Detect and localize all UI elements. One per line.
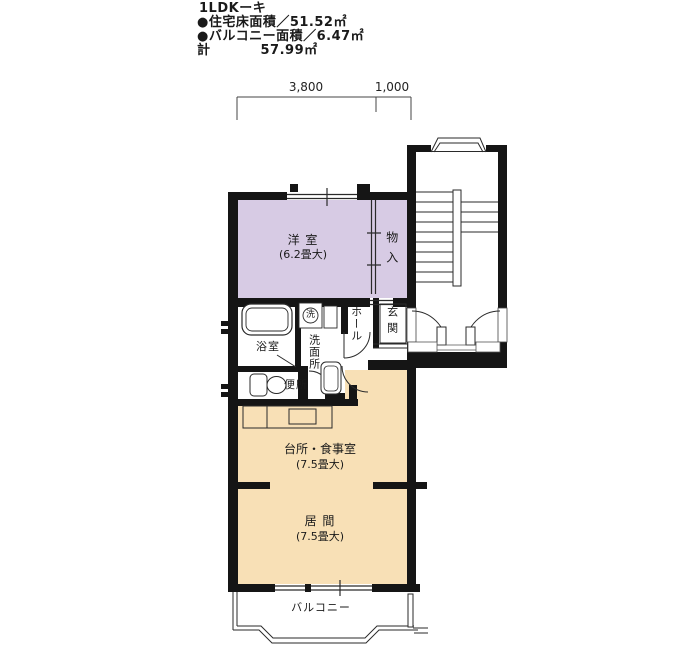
wall-kitchen-door-stub bbox=[349, 385, 357, 406]
balcony-parapet-outer bbox=[233, 630, 418, 643]
door-leaf-right bbox=[466, 327, 475, 345]
window-living-right bbox=[311, 586, 372, 590]
floorplan-page: 1LDKーキ ●住宅床面積／51.52㎡ ●バルコニー面積／6.47㎡ 計 57… bbox=[0, 0, 700, 650]
closet-label: 物入 bbox=[384, 231, 398, 271]
stair-break-symbol bbox=[431, 138, 486, 152]
wall-entrance-bottom bbox=[368, 360, 412, 370]
wall-left-exterior bbox=[228, 192, 238, 592]
kitchen-dining-label: 台所・食事室 bbox=[260, 443, 380, 457]
total-line: 計 57.99㎡ bbox=[197, 44, 318, 59]
balcony-label: バルコニー bbox=[271, 602, 371, 615]
western-room-size: (6.2畳大) bbox=[243, 249, 363, 262]
wall-kitchen-top bbox=[238, 399, 358, 406]
bathtub-inner bbox=[246, 308, 288, 331]
wall-stair-top-left bbox=[407, 145, 431, 152]
balcony-outline bbox=[233, 592, 428, 643]
dim-label-3800: 3,800 bbox=[276, 81, 336, 95]
wall-top-right bbox=[357, 192, 412, 200]
wall-living-bottom-mid bbox=[305, 584, 311, 592]
living-room-size: (7.5畳大) bbox=[260, 531, 380, 544]
wall-stair-bottom bbox=[412, 352, 507, 368]
window-western-room bbox=[287, 195, 357, 199]
wall-stub-above-right bbox=[357, 184, 370, 192]
entrance-double-doors bbox=[412, 311, 500, 345]
door-sill-right bbox=[476, 342, 500, 352]
stair-break-inner bbox=[434, 143, 483, 152]
total-value: 57.99㎡ bbox=[261, 44, 318, 59]
kitchen-living-fill bbox=[238, 406, 407, 584]
balcony-left-edge bbox=[233, 592, 237, 630]
kitchen-dining-size: (7.5畳大) bbox=[260, 459, 380, 472]
balcony-parapet-inner bbox=[237, 626, 414, 638]
washroom-shelf bbox=[324, 306, 337, 328]
bathroom-label: 浴室 bbox=[256, 341, 280, 354]
dim-label-1000: 1,000 bbox=[362, 81, 422, 95]
wall-bath-bottom bbox=[228, 366, 301, 372]
washbasin-inner bbox=[324, 366, 338, 391]
living-room-label: 居 間 bbox=[260, 515, 380, 529]
total-label: 計 bbox=[197, 44, 211, 59]
stair-center-rail bbox=[453, 190, 461, 286]
door-sill-center bbox=[437, 345, 476, 350]
balcony-right-pillar bbox=[408, 594, 413, 627]
washroom-label: 洗面所 bbox=[307, 334, 320, 370]
entrance-door-frame-right bbox=[498, 308, 507, 342]
vent-mark-upper-1 bbox=[221, 321, 228, 326]
toilet-label: 便所 bbox=[284, 379, 308, 392]
entrance-label: 玄関 bbox=[385, 306, 398, 338]
door-sill-left bbox=[408, 342, 437, 352]
wall-top-left bbox=[228, 192, 287, 200]
wall-kitchen-living-left bbox=[238, 482, 270, 489]
wall-hall-left bbox=[341, 298, 348, 334]
bathroom-door-line bbox=[277, 355, 296, 367]
wall-hall-entrance bbox=[373, 298, 379, 348]
stairwell bbox=[407, 138, 507, 352]
washer-symbol-label: 洗 bbox=[306, 310, 315, 320]
wall-living-bottom-right bbox=[372, 584, 420, 592]
entrance-door-frame-left bbox=[407, 308, 416, 342]
toilet-tank bbox=[250, 374, 267, 396]
dimension-lines bbox=[237, 97, 411, 120]
western-room-label: 洋 室 bbox=[243, 234, 363, 248]
door-leaf-left bbox=[437, 327, 446, 345]
wall-living-bottom-left bbox=[228, 584, 275, 592]
window-living-left bbox=[275, 586, 305, 590]
vent-mark-lower-1 bbox=[221, 384, 228, 389]
wall-stub-above-left bbox=[290, 184, 298, 192]
hall-label: ホール bbox=[349, 306, 362, 342]
wall-kitchen-living-right bbox=[373, 482, 427, 489]
vent-mark-lower-2 bbox=[221, 392, 228, 397]
vent-mark-upper-2 bbox=[221, 329, 228, 334]
